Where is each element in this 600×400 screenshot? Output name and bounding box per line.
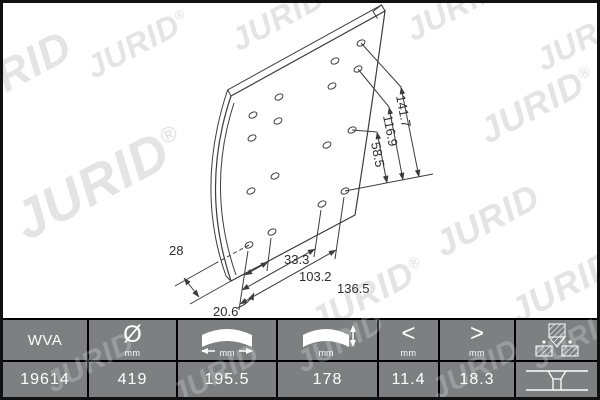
- technical-drawing: JURID® JURID JURID® JURID JURID JURID® J…: [3, 3, 597, 318]
- svg-text:mm: mm: [220, 348, 235, 358]
- dim-103-2: 103.2: [299, 269, 332, 284]
- dim-33-3: 33.3: [284, 252, 309, 267]
- brake-lining-drawing: JURID® JURID JURID® JURID JURID JURID® J…: [3, 3, 597, 318]
- countersunk-hole-icon: [524, 366, 590, 394]
- less-than-icon: <: [401, 322, 415, 346]
- header-lining-thickness: mm: [278, 320, 377, 360]
- greater-than-icon: >: [470, 322, 484, 346]
- rivet-icon: [534, 322, 580, 358]
- dim-28: 28: [169, 243, 183, 258]
- value-wva: 19614: [3, 362, 87, 397]
- value-rivet-type: [516, 362, 597, 397]
- svg-text:JURID: JURID: [503, 242, 597, 318]
- lining-width-icon: mm: [199, 322, 255, 358]
- dim-20-6: 20.6: [213, 304, 238, 318]
- value-min: 11.4: [379, 362, 438, 397]
- diameter-icon: Ø: [123, 323, 142, 347]
- value-thickness: 178: [278, 362, 377, 397]
- header-rivet: [516, 320, 597, 360]
- lining-thickness-icon: mm: [300, 322, 356, 358]
- dim-136-5: 136.5: [337, 281, 370, 296]
- header-min: < mm: [379, 320, 438, 360]
- svg-text:JURID®: JURID®: [80, 3, 195, 85]
- svg-text:JURID: JURID: [400, 3, 506, 48]
- header-max: > mm: [440, 320, 514, 360]
- svg-text:JURID®: JURID®: [472, 56, 597, 151]
- dimension-lines-bottom: [175, 197, 344, 310]
- value-max: 18.3: [440, 362, 514, 397]
- dim-58-5: 58.5: [368, 141, 388, 169]
- spec-table: WVA Ø mm mm mm < mm > mm: [3, 318, 597, 397]
- svg-text:mm: mm: [318, 348, 333, 358]
- value-diameter: 419: [89, 362, 176, 397]
- svg-text:JURID: JURID: [428, 175, 547, 264]
- value-width: 195.5: [178, 362, 276, 397]
- header-lining-width: mm: [178, 320, 276, 360]
- header-diameter: Ø mm: [89, 320, 176, 360]
- svg-text:JURID: JURID: [3, 21, 80, 129]
- header-wva: WVA: [3, 320, 87, 360]
- catalog-card: { "brand": { "watermark": "JURID", "regi…: [0, 0, 600, 400]
- svg-text:JURID®: JURID®: [4, 112, 195, 251]
